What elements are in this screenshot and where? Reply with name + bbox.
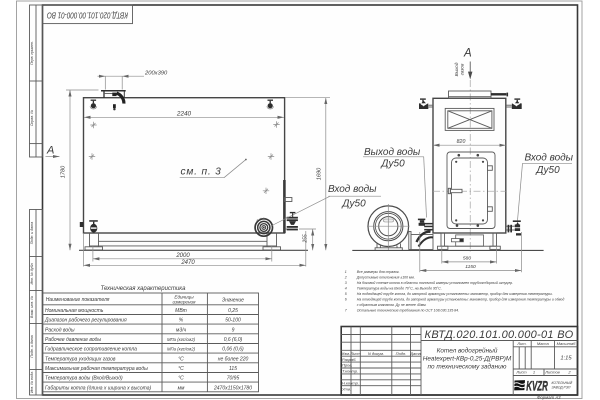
svg-text:Остальные технические требован: Остальные технические требования по ОСТ … — [357, 308, 460, 312]
svg-text:КВТД.020.101.00.000-01 ВО: КВТД.020.101.00.000-01 ВО — [47, 10, 128, 19]
svg-text:Пров.: Пров. — [342, 363, 353, 368]
svg-text:2240: 2240 — [176, 110, 192, 117]
svg-text:Инв. № подл.: Инв. № подл. — [30, 371, 34, 393]
svg-text:50-100: 50-100 — [225, 318, 241, 324]
svg-text:На отводящей трубе котла, до з: На отводящей трубе котла, до запорной ар… — [357, 297, 565, 301]
svg-text:0,25: 0,25 — [228, 308, 238, 314]
svg-text:МПа (кгс/см2): МПа (кгс/см2) — [167, 347, 196, 352]
svg-text:КВТД.020.101.00.000-01 ВО: КВТД.020.101.00.000-01 ВО — [425, 329, 574, 341]
svg-text:4: 4 — [345, 286, 347, 290]
svg-text:1780: 1780 — [61, 165, 67, 178]
svg-text:Изм.: Изм. — [342, 351, 351, 356]
svg-text:1690: 1690 — [317, 167, 323, 180]
svg-text:м3/ч: м3/ч — [176, 327, 187, 333]
svg-text:мм: мм — [178, 385, 185, 391]
svg-text:200х390: 200х390 — [144, 71, 168, 77]
svg-text:Номинальная мощность: Номинальная мощность — [45, 308, 104, 314]
svg-text:Значение: Значение — [222, 297, 244, 303]
svg-text:0,06 (0,6): 0,06 (0,6) — [222, 347, 244, 353]
svg-text:2470: 2470 — [180, 260, 195, 266]
svg-text:Масштаб: Масштаб — [557, 341, 576, 346]
svg-text:Heatexpert-КВр-0,25-Д(РВР)М: Heatexpert-КВр-0,25-Д(РВР)М — [423, 356, 512, 363]
svg-text:Допустимые отклонения ±100 мм: Допустимые отклонения ±100 мм. — [356, 275, 415, 279]
svg-text:2470х1150х1780: 2470х1150х1780 — [213, 385, 252, 391]
svg-text:6: 6 — [345, 297, 347, 301]
svg-text:255: 255 — [303, 234, 309, 244]
svg-text:Котел водогрейный: Котел водогрейный — [437, 347, 498, 355]
svg-text:Рабочее давление воды: Рабочее давление воды — [45, 337, 101, 343]
svg-text:70/95: 70/95 — [227, 376, 240, 382]
svg-text:Подп. и дата: Подп. и дата — [30, 222, 34, 245]
svg-text:Разраб.: Разраб. — [342, 357, 356, 362]
svg-text:На подводящей трубе котла, д: На подводящей трубе котла, до запорной а… — [357, 292, 553, 296]
svg-text:Взам. инв. №: Взам. инв. № — [30, 296, 34, 318]
svg-text:не более 220: не более 220 — [218, 356, 249, 362]
svg-text:Габариты котла (длина х ширина: Габариты котла (длина х ширина х высота) — [45, 385, 152, 391]
svg-text:5: 5 — [345, 292, 347, 296]
svg-text:Выход: Выход — [454, 62, 459, 76]
svg-text:МВт: МВт — [175, 308, 187, 314]
svg-text:измерения: измерения — [173, 299, 197, 304]
svg-text:Вход воды: Вход воды — [328, 184, 377, 195]
svg-text:Расход воды: Расход воды — [45, 327, 75, 333]
svg-text:1:15: 1:15 — [560, 356, 572, 362]
svg-text:3: 3 — [345, 281, 347, 285]
svg-text:Ду50: Ду50 — [380, 159, 405, 170]
svg-text:Температура уходящих газов: Температура уходящих газов — [45, 356, 116, 362]
svg-text:115: 115 — [229, 366, 237, 372]
svg-text:1150: 1150 — [465, 264, 476, 270]
svg-text:0,6 (6,0): 0,6 (6,0) — [224, 337, 243, 343]
svg-text:На боковой стенке котла в обла: На боковой стенке котла в области топочн… — [357, 281, 513, 285]
svg-text:Масса: Масса — [537, 341, 550, 346]
svg-text:Листов: Листов — [544, 370, 560, 375]
svg-text:Лист: Лист — [515, 370, 527, 375]
svg-text:Выход воды: Выход воды — [364, 147, 421, 158]
svg-text:°С: °С — [178, 366, 184, 372]
svg-text:Дата: Дата — [409, 351, 421, 356]
svg-text:9: 9 — [232, 327, 235, 333]
svg-text:по техническому заданию: по техническому заданию — [428, 363, 507, 371]
svg-text:1: 1 — [345, 270, 347, 274]
svg-text:2: 2 — [344, 275, 347, 279]
svg-text:А: А — [46, 145, 54, 157]
svg-text:Лист: Лист — [349, 351, 361, 356]
svg-text:см. п. 3: см. п. 3 — [181, 167, 222, 178]
svg-text:Перв. примен.: Перв. примен. — [30, 41, 34, 65]
svg-text:Гидравлическое сопротивление к: Гидравлическое сопротивление котла — [45, 347, 137, 353]
svg-text:А: А — [463, 48, 472, 60]
svg-text:газов: газов — [460, 63, 465, 75]
svg-text:Техническая характеристика: Техническая характеристика — [101, 286, 187, 292]
svg-text:Лит.: Лит. — [516, 341, 526, 346]
svg-text:Наименование показателя: Наименование показателя — [46, 297, 110, 303]
svg-text:%: % — [179, 318, 184, 324]
svg-text:°С: °С — [178, 376, 184, 382]
svg-text:Все размеры для справок.: Все размеры для справок. — [357, 270, 400, 274]
svg-text:Температура воды на Входе 70°С: Температура воды на Входе 70°С, на Выход… — [357, 286, 442, 290]
svg-text:Утв.: Утв. — [342, 386, 351, 391]
svg-text:ЗАВОД РЭП: ЗАВОД РЭП — [552, 385, 572, 389]
svg-text:1: 1 — [533, 370, 535, 375]
svg-text:Температура воды (Вход/Выход): Температура воды (Вход/Выход) — [45, 376, 123, 382]
svg-text:Ду50: Ду50 — [341, 199, 366, 210]
svg-text:KVZR: KVZR — [526, 378, 548, 394]
svg-text:Справ. №: Справ. № — [30, 110, 34, 126]
svg-text:580: 580 — [463, 255, 471, 261]
svg-text:с обратным клапаном. Ду не мен: с обратным клапаном. Ду не менее 40мм. — [357, 303, 427, 307]
svg-text:°С: °С — [178, 356, 184, 362]
svg-text:Подп.: Подп. — [396, 351, 407, 356]
svg-text:МПа (кгс/см2): МПа (кгс/см2) — [167, 337, 196, 342]
svg-text:Максимальная рабочая температу: Максимальная рабочая температура воды — [45, 366, 148, 372]
svg-text:Подп. и дата: Подп. и дата — [30, 335, 34, 358]
svg-text:КОТЕЛЬНЫЙ: КОТЕЛЬНЫЙ — [552, 381, 573, 385]
svg-text:Вход воды: Вход воды — [525, 152, 574, 163]
svg-text:Инв. № дубл.: Инв. № дубл. — [30, 262, 34, 284]
svg-text:2000: 2000 — [175, 253, 190, 259]
svg-text:820: 820 — [457, 139, 466, 145]
svg-text:N докум.: N докум. — [368, 351, 384, 356]
svg-text:Ду50: Ду50 — [535, 165, 560, 176]
svg-text:Формат А3: Формат А3 — [537, 395, 561, 400]
svg-text:Диапазон рабочего регулировани: Диапазон рабочего регулирования — [44, 318, 127, 324]
svg-text:Н.контр.: Н.контр. — [342, 380, 359, 385]
svg-text:Т.контр.: Т.контр. — [342, 369, 358, 374]
